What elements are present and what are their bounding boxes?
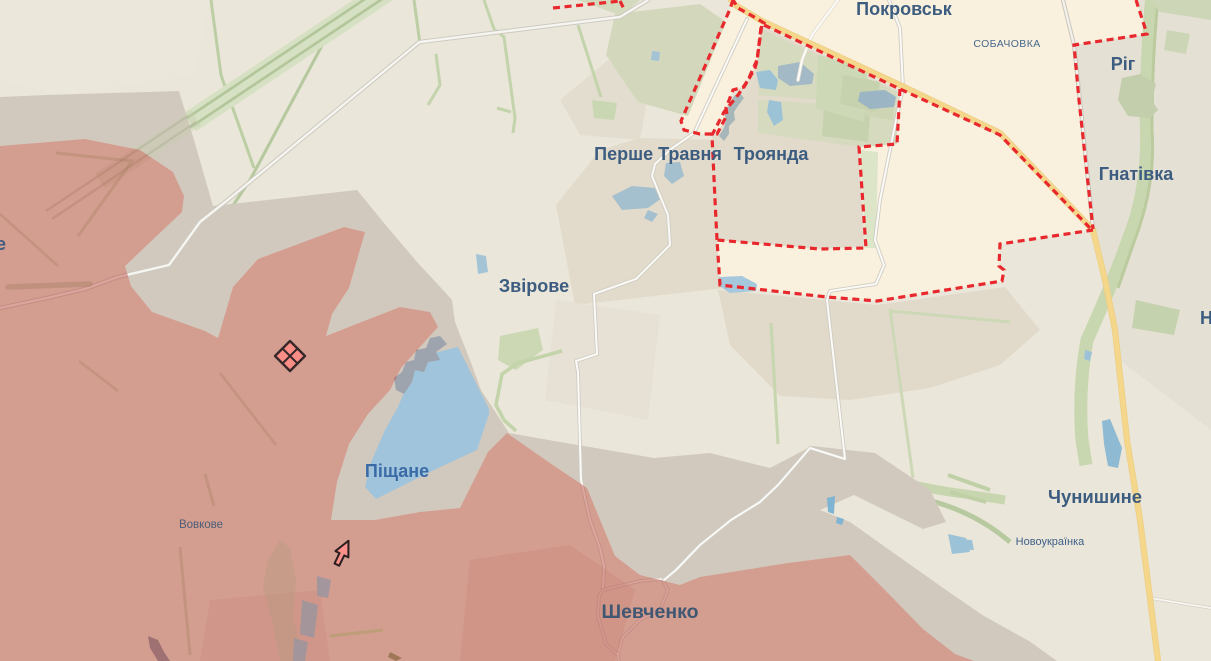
- svg-text:Троянда: Троянда: [734, 144, 810, 164]
- svg-text:Вовкове: Вовкове: [179, 519, 223, 531]
- svg-text:Гнатівка: Гнатівка: [1099, 164, 1175, 184]
- svg-text:Перше Травня: Перше Травня: [594, 144, 722, 164]
- svg-text:СОБАЧОВКА: СОБАЧОВКА: [973, 38, 1040, 50]
- svg-text:Шевченко: Шевченко: [601, 601, 698, 623]
- svg-text:Чунишине: Чунишине: [1048, 486, 1142, 507]
- svg-text:Покровськ: Покровськ: [856, 0, 953, 19]
- svg-text:Н: Н: [1200, 308, 1211, 328]
- svg-text:Ріг: Ріг: [1111, 54, 1136, 74]
- svg-text:Піщане: Піщане: [365, 461, 429, 481]
- svg-text:Звірове: Звірове: [499, 276, 569, 296]
- svg-text:Новоукраїнка: Новоукраїнка: [1016, 536, 1086, 548]
- svg-text:е: е: [0, 234, 6, 254]
